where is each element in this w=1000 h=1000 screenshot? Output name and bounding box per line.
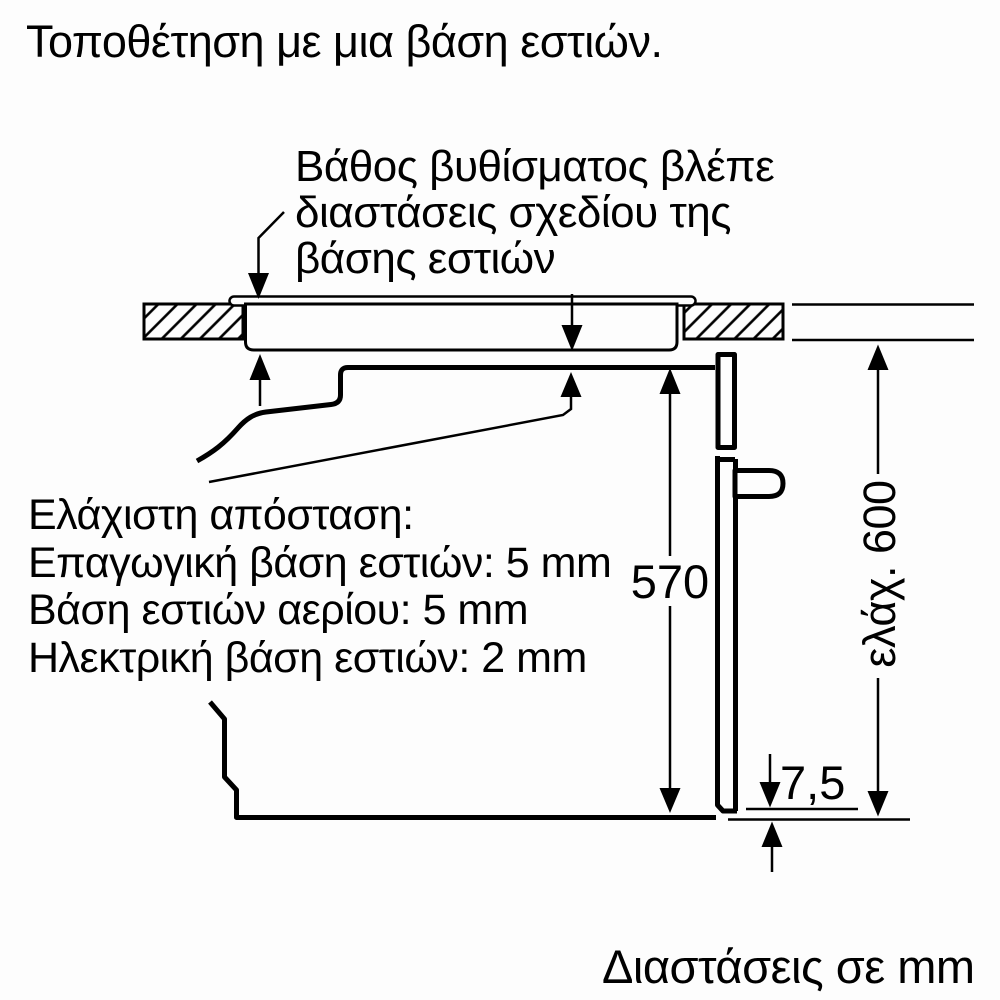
- min-distance-text-block: Ελάχιστη απόσταση:Επαγωγική βάση εστιών:…: [28, 492, 611, 682]
- oven-control-panel-front: [718, 355, 735, 448]
- hob-body: [246, 304, 678, 350]
- min-distance-arrowhead-up: [561, 372, 582, 397]
- min-distance-leader: [209, 372, 582, 482]
- dimension-label-min-600: ελάχ. 600: [854, 454, 900, 694]
- min-distance-gas: Βάση εστιών αερίου: 5 mm: [28, 586, 528, 634]
- recess-depth-arrowhead-down: [248, 273, 269, 299]
- recess-depth-leader-line: [259, 212, 285, 273]
- recess-depth-annotation-line2: διαστάσεις σχεδίου της: [295, 188, 731, 237]
- dimension-label-570: 570: [618, 554, 722, 609]
- installation-diagram-page: Τοποθέτηση με μια βάση εστιών. Βάθος βυθ…: [0, 0, 1000, 1000]
- dim-570-arrowhead-bottom: [660, 788, 681, 813]
- recess-depth-annotation-line1: Βάθος βυθίσματος βλέπε: [295, 142, 774, 191]
- min-distance-leader-line: [209, 397, 571, 482]
- units-note: Διαστάσεις σε mm: [602, 939, 975, 994]
- oven-top-outline: [197, 368, 715, 462]
- oven-door-handle: [735, 471, 783, 497]
- min-distance-heading: Ελάχιστη απόσταση:: [28, 491, 414, 539]
- hob-depth-arrowhead-up: [250, 354, 271, 380]
- page-title: Τοποθέτηση με μια βάση εστιών.: [26, 16, 662, 68]
- oven-bottom-left-outline: [210, 702, 716, 818]
- countertop-right-section: [684, 304, 783, 339]
- dim-75-arrowhead-down: [760, 782, 781, 808]
- dimension-label-7-5: 7,5: [780, 755, 845, 810]
- recess-depth-annotation-line3: βάσης εστιών: [295, 234, 555, 283]
- min-distance-electric: Ηλεκτρική βάση εστιών: 2 mm: [28, 634, 587, 682]
- dim-600-arrowhead-bottom: [868, 791, 889, 817]
- dim-600-arrowhead-top: [868, 345, 889, 371]
- recess-depth-annotation: Βάθος βυθίσματος βλέπεδιαστάσεις σχεδίου…: [295, 144, 774, 282]
- min-distance-induction: Επαγωγική βάση εστιών: 5 mm: [28, 539, 611, 587]
- countertop-left-section: [144, 304, 243, 339]
- hob: [230, 297, 696, 351]
- dim-570-arrowhead-top: [660, 368, 681, 394]
- dim-75-arrowhead-up: [762, 822, 783, 848]
